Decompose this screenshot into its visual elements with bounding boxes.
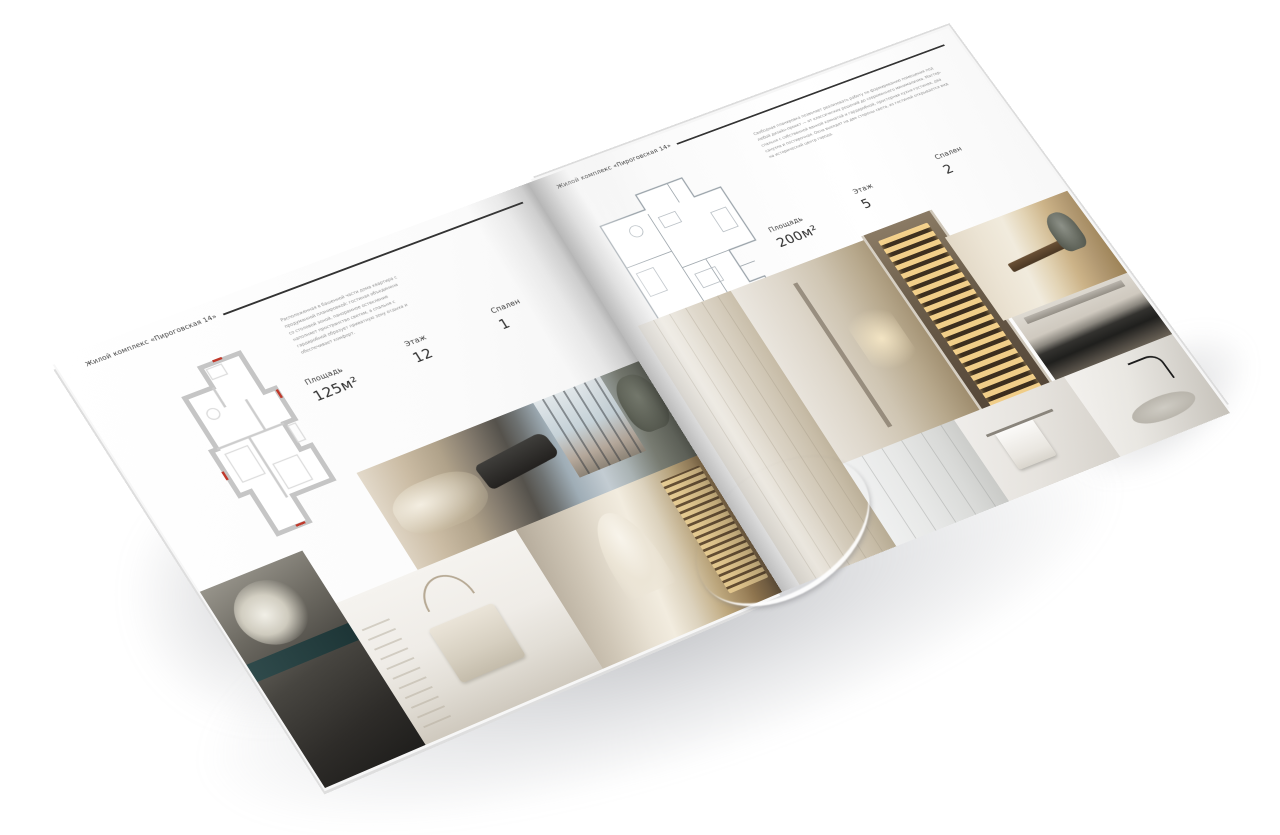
stat-floor-value: 5	[858, 191, 886, 211]
arched-niche	[581, 504, 676, 601]
stat-floor: Этаж 5	[851, 182, 886, 212]
sink-basin	[1126, 385, 1202, 430]
brochure-mockup-scene: Жилой комплекс «Пироговская 14»	[0, 0, 1280, 835]
stat-floor: Этаж 12	[403, 333, 439, 366]
stat-area: Площадь 125м²	[303, 363, 362, 405]
bedroom-bench	[473, 431, 560, 491]
white-bed	[428, 603, 526, 683]
stat-bedrooms: Спален 1	[489, 297, 533, 333]
stat-area: Площадь 200м²	[767, 213, 822, 251]
stat-floor-value: 12	[409, 344, 439, 366]
stat-bedrooms: Спален 2	[933, 145, 975, 177]
black-faucet	[1127, 352, 1175, 389]
wall-garland-decor	[412, 567, 475, 612]
